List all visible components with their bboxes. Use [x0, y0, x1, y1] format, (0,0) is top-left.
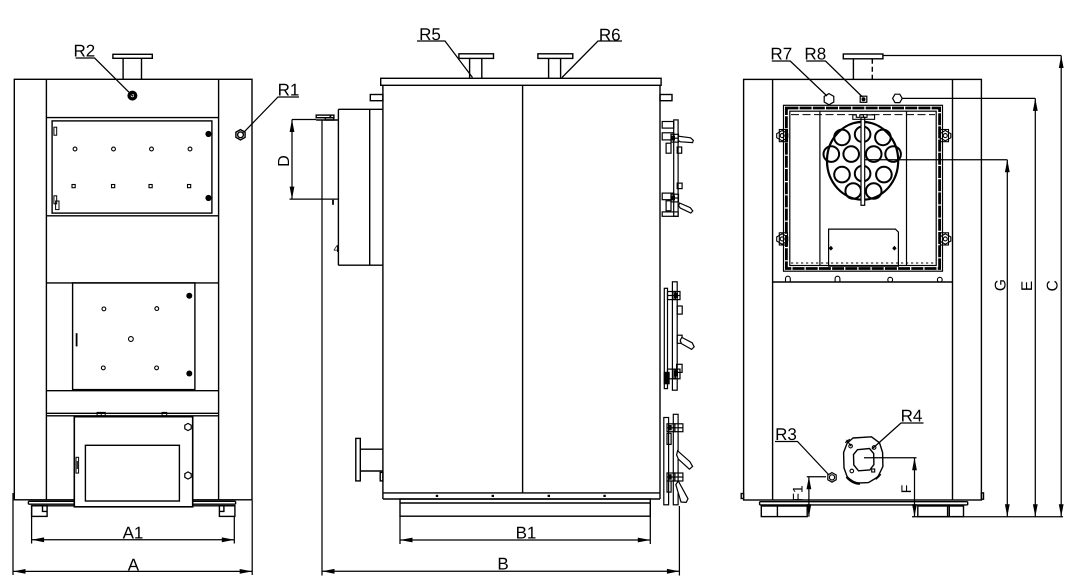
svg-text:F1: F1 — [790, 485, 806, 502]
svg-text:R6: R6 — [599, 25, 621, 44]
svg-text:B1: B1 — [516, 523, 537, 542]
svg-text:R2: R2 — [74, 41, 96, 60]
svg-text:G: G — [993, 279, 1010, 291]
svg-text:B: B — [497, 555, 508, 574]
svg-text:F: F — [898, 485, 914, 494]
svg-text:R5: R5 — [419, 25, 441, 44]
svg-text:R8: R8 — [804, 45, 826, 64]
svg-text:4: 4 — [334, 244, 340, 255]
svg-text:A1: A1 — [123, 524, 144, 543]
svg-text:R3: R3 — [775, 425, 797, 444]
svg-text:A: A — [128, 555, 140, 574]
svg-text:R1: R1 — [278, 80, 300, 99]
svg-text:R4: R4 — [901, 407, 923, 426]
svg-text:C: C — [1045, 280, 1062, 291]
svg-text:D: D — [276, 155, 293, 167]
svg-text:R7: R7 — [770, 45, 792, 64]
svg-text:E: E — [1019, 281, 1036, 291]
